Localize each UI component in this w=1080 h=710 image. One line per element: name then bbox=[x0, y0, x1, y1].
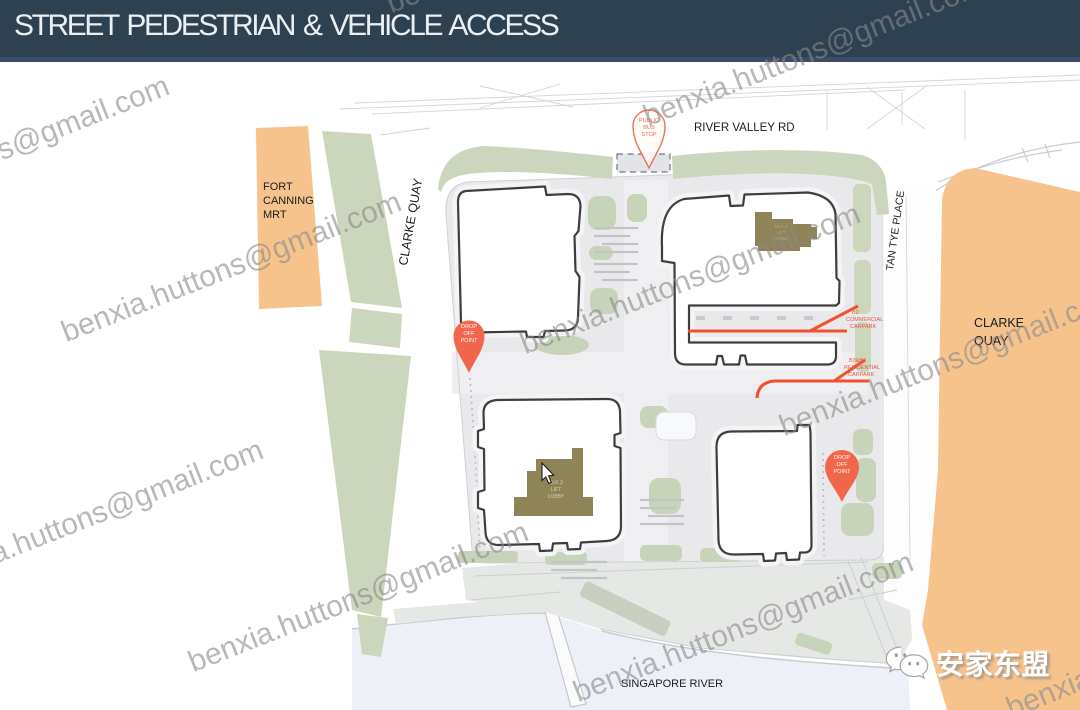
svg-text:PUBLIC: PUBLIC bbox=[639, 118, 659, 124]
svg-text:LIFT: LIFT bbox=[551, 487, 561, 493]
svg-text:QUAY: QUAY bbox=[974, 334, 1009, 348]
svg-text:RESIDENTIAL: RESIDENTIAL bbox=[844, 365, 880, 371]
svg-text:CANNING: CANNING bbox=[263, 195, 314, 207]
svg-text:LOBBY: LOBBY bbox=[773, 236, 788, 241]
svg-text:DROP: DROP bbox=[461, 324, 477, 330]
svg-text:B3&B4: B3&B4 bbox=[849, 358, 866, 364]
svg-text:SINGAPORE RIVER: SINGAPORE RIVER bbox=[621, 678, 723, 690]
svg-text:POINT: POINT bbox=[460, 338, 478, 344]
svg-text:CARPARK: CARPARK bbox=[850, 324, 877, 330]
svg-text:STOP: STOP bbox=[641, 132, 656, 138]
svg-text:LOBBY: LOBBY bbox=[548, 494, 565, 500]
svg-text:CARPARK: CARPARK bbox=[848, 372, 875, 378]
svg-text:DROP: DROP bbox=[834, 455, 850, 461]
svg-text:OFF: OFF bbox=[463, 331, 475, 337]
svg-text:OFF: OFF bbox=[836, 462, 848, 468]
svg-text:COMMERCIAL: COMMERCIAL bbox=[846, 317, 883, 323]
svg-text:CLARKE QUAY: CLARKE QUAY bbox=[396, 177, 425, 267]
svg-text:BUS: BUS bbox=[643, 125, 655, 131]
svg-text:BLK 2: BLK 2 bbox=[775, 224, 788, 229]
svg-text:B2: B2 bbox=[852, 310, 859, 316]
svg-text:FORT: FORT bbox=[263, 181, 293, 193]
svg-text:LIFT: LIFT bbox=[776, 230, 786, 235]
svg-text:MRT: MRT bbox=[263, 209, 287, 221]
svg-text:POINT: POINT bbox=[833, 469, 851, 475]
svg-text:CLARKE: CLARKE bbox=[974, 316, 1024, 330]
svg-text:RIVER VALLEY RD: RIVER VALLEY RD bbox=[694, 122, 795, 134]
